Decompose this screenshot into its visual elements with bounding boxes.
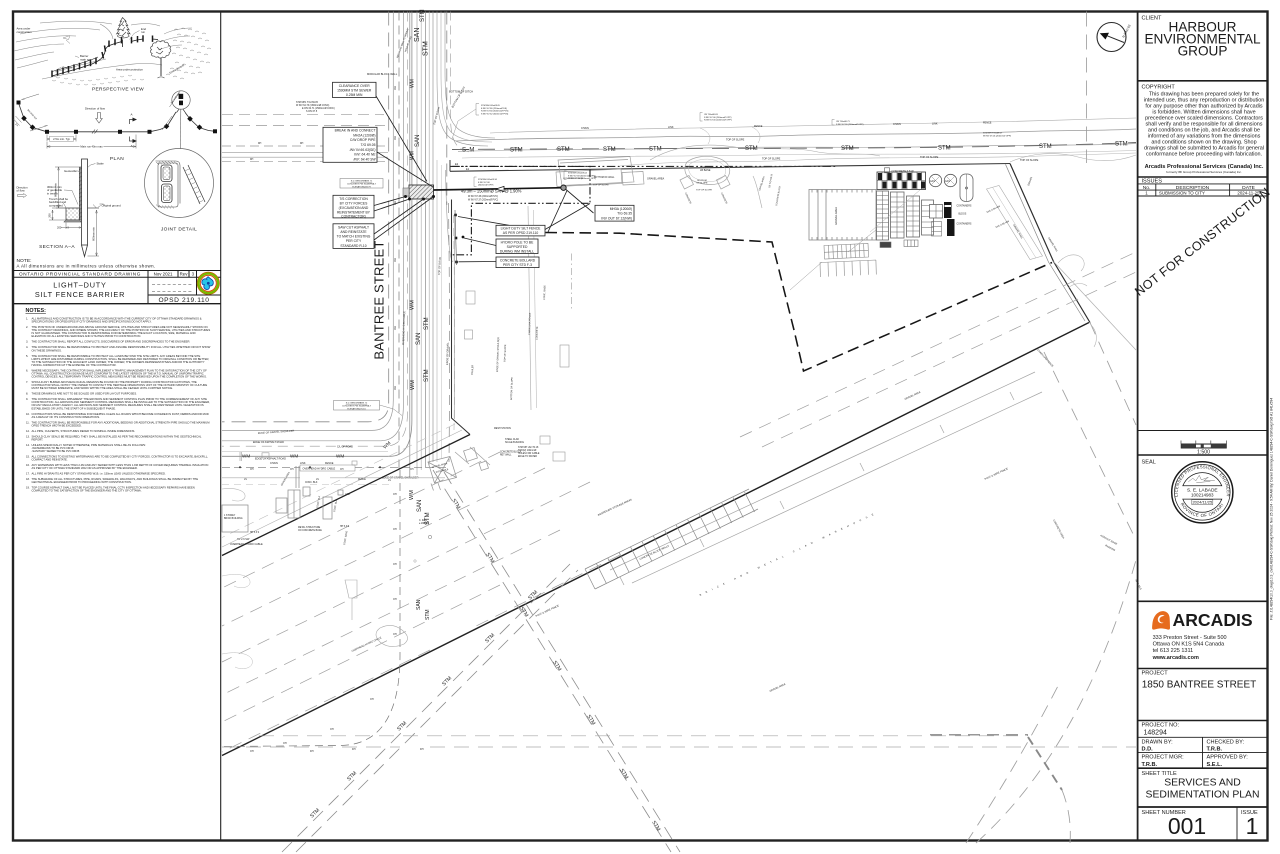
svg-text:SEDIMENTATION PLAN: SEDIMENTATION PLAN — [1146, 790, 1260, 801]
svg-text:GEOTECHNICAL ENGINEER PRIOR TO: GEOTECHNICAL ENGINEER PRIOR TO PROCEEDIN… — [32, 480, 132, 484]
svg-text:STM: STM — [424, 369, 430, 382]
svg-text:5.: 5. — [26, 354, 29, 358]
svg-text:333 Preston Street - Suite 500: 333 Preston Street - Suite 500 — [1153, 635, 1227, 641]
svg-text:DH: DH — [250, 159, 254, 161]
svg-text:CHAIN LINK FENCE: CHAIN LINK FENCE — [528, 312, 532, 335]
svg-text:ESTABLISHED OR UNTIL THE START: ESTABLISHED OR UNTIL THE START OF A SUBS… — [32, 406, 117, 410]
svg-text:BANTREE STREET: BANTREE STREET — [372, 240, 387, 359]
svg-text:INV OUT 67.12(NW): INV OUT 67.12(NW) — [601, 217, 632, 221]
svg-text:E1: E1 — [466, 167, 470, 171]
svg-text:CB T/G=69.10: CB T/G=69.10 — [769, 173, 774, 188]
svg-text:OH: OH — [283, 742, 287, 745]
svg-text:CONC. BLK: CONC. BLK — [305, 482, 318, 484]
svg-text:WM: WM — [242, 454, 250, 459]
svg-text:11.: 11. — [26, 420, 30, 424]
svg-text:2.: 2. — [26, 325, 29, 329]
svg-text:STM MH UG=69.05: STM MH UG=69.05 — [481, 105, 501, 107]
svg-text:tel 613 225 1311: tel 613 225 1311 — [1153, 648, 1194, 654]
svg-text:4.: 4. — [26, 345, 29, 349]
svg-text:1850 BANTREE STREET: 1850 BANTREE STREET — [1142, 680, 1256, 691]
svg-text:AGGREGATE STORAGE AREAS: AGGREGATE STORAGE AREAS — [597, 498, 633, 517]
svg-text:CONCRETE PIN IN ASPHALT: CONCRETE PIN IN ASPHALT — [342, 404, 372, 407]
svg-text:STOCKPILE: STOCKPILE — [436, 469, 449, 474]
svg-text:OH: OH — [410, 469, 414, 471]
svg-text:ON CONCRETE BASE: ON CONCRETE BASE — [298, 529, 322, 532]
svg-text:EDGE TO WATER: EDGE TO WATER — [518, 455, 537, 458]
svg-text:GRAVEL: GRAVEL — [1027, 176, 1033, 187]
svg-text:BREAK IN AND CONNECT: BREAK IN AND CONNECT — [335, 129, 376, 133]
svg-text:CONCRETE BLOCK WALLS: CONCRETE BLOCK WALLS — [639, 544, 670, 560]
svg-text:1500MM STM SEWER: 1500MM STM SEWER — [337, 88, 372, 92]
svg-text:STM: STM — [484, 632, 496, 644]
svg-text:REPORT.: REPORT. — [32, 437, 44, 441]
svg-text:OPSD 219.110: OPSD 219.110 — [158, 297, 209, 304]
svg-text:CHAIN LINK FENCE: CHAIN LINK FENCE — [1036, 349, 1054, 368]
svg-text:WM: WM — [410, 79, 416, 88]
svg-text:GRAVEL AREA: GRAVEL AREA — [432, 462, 449, 469]
svg-text:ELEVATION=70.16: ELEVATION=70.16 — [347, 407, 366, 410]
svg-text:PLAN: PLAN — [110, 156, 124, 162]
svg-text:OH: OH — [393, 86, 397, 90]
svg-text:1.: 1. — [26, 317, 29, 321]
svg-text:OPSD TRENCH WIDTH BE EXCEEDED.: OPSD TRENCH WIDTH BE EXCEEDED. — [32, 423, 82, 427]
svg-text:BRICK AND METAL CLAD WAREH: BRICK AND METAL CLAD WAREHOUSE — [699, 511, 878, 597]
svg-text:19.: 19. — [26, 486, 30, 490]
svg-text:14.: 14. — [26, 443, 30, 447]
svg-text:TOP OF SLOPE: TOP OF SLOPE — [504, 344, 508, 362]
svg-text:OH: OH — [393, 386, 397, 390]
svg-text:PROJECT MGR:: PROJECT MGR: — [1142, 755, 1185, 761]
svg-text:SAN: SAN — [416, 599, 422, 610]
svg-text:STM: STM — [1115, 142, 1128, 148]
svg-text:POST & WIRE FENCE: POST & WIRE FENCE — [984, 467, 1009, 481]
svg-text:of flow: of flow — [17, 189, 26, 193]
svg-text:OH: OH — [393, 563, 397, 566]
svg-text:MH3A (1200Ø): MH3A (1200Ø) — [610, 207, 632, 211]
svg-text:ON THESE DRAWINGS.: ON THESE DRAWINGS. — [32, 348, 62, 352]
svg-text:STM: STM — [424, 317, 430, 330]
svg-text:ARCADIS: ARCADIS — [1173, 610, 1253, 630]
svg-text:C/W DROP PIPE: C/W DROP PIPE — [350, 138, 376, 142]
svg-text:TOP OF SLOPE: TOP OF SLOPE — [726, 139, 745, 142]
svg-text:BOTTOM OF SLOPE: BOTTOM OF SLOPE — [510, 377, 514, 400]
svg-text:INV IN 66.63(SE): INV IN 66.63(SE) — [350, 148, 376, 152]
svg-text:STM: STM — [649, 147, 662, 153]
svg-text:CONCRETE: CONCRETE — [684, 193, 691, 205]
svg-text:LINK: LINK — [668, 126, 674, 129]
svg-text:SPECIFICATIONS OR OPSD/OPSS IF: SPECIFICATIONS OR OPSD/OPSS IF CITY DRAW… — [32, 320, 152, 324]
svg-text:MESH STATION: MESH STATION — [494, 427, 511, 430]
svg-text:E INV 64.71 (1500mmØ CONC): E INV 64.71 (1500mmØ CONC) — [302, 108, 335, 110]
svg-text:TOP OF DITCH: TOP OF DITCH — [437, 257, 442, 276]
svg-text:CHAIN: CHAIN — [270, 462, 278, 465]
svg-text:File: J:\148294\10.0_dwg\10.3_: File: J:\148294\10.0_dwg\10.3_civil\1482… — [1270, 398, 1274, 620]
svg-text:Embankment: Embankment — [169, 63, 185, 75]
svg-text:-SANITARY SEWER TO BE PVC DR35: -SANITARY SEWER TO BE PVC DR35 — [32, 449, 80, 453]
svg-text:TRAILER: TRAILER — [471, 365, 474, 375]
svg-text:8.: 8. — [26, 392, 29, 396]
svg-text:LS: LS — [388, 480, 391, 482]
svg-text:13.: 13. — [26, 434, 30, 438]
svg-text:EDGE OF GRAVEL SHOULDER: EDGE OF GRAVEL SHOULDER — [496, 337, 500, 372]
svg-text:N INV 67.00 (200mmØ OPP): N INV 67.00 (200mmØ OPP) — [704, 120, 732, 122]
svg-text:formerly IBI Group Professiona: formerly IBI Group Professional Services… — [1166, 170, 1242, 174]
svg-text:DH: DH — [352, 748, 356, 751]
svg-text:EDGE OF ASPHALT ROAD: EDGE OF ASPHALT ROAD — [255, 458, 286, 461]
svg-text:OH: OH — [250, 469, 254, 471]
svg-text:WM: WM — [409, 490, 415, 500]
svg-text:JOINT DETAIL: JOINT DETAIL — [161, 227, 197, 233]
svg-text:CLIENT: CLIENT — [1142, 16, 1162, 22]
svg-text:1: 1 — [1145, 191, 1148, 196]
svg-text:STM: STM — [510, 148, 523, 154]
svg-text:CONC. BASE: CONC. BASE — [543, 285, 547, 300]
svg-text:WM: WM — [410, 380, 416, 390]
svg-text:Stake: Stake — [97, 162, 105, 166]
svg-text:End run: End run — [63, 66, 73, 70]
svg-text:W INV 64.73 (1500mmØ CONC): W INV 64.73 (1500mmØ CONC) — [296, 105, 330, 107]
svg-text:(300mmØ OPP): (300mmØ OPP) — [478, 185, 494, 187]
svg-text:PERSPECTIVE VIEW: PERSPECTIVE VIEW — [92, 87, 144, 93]
svg-text:CONCRETE: CONCRETE — [720, 193, 727, 205]
svg-text:STM: STM — [441, 675, 453, 687]
svg-text:OH: OH — [393, 528, 397, 531]
svg-text:600mm min: 600mm min — [92, 227, 96, 241]
svg-text:S–M: S–M — [462, 148, 474, 154]
svg-text:www.arcadis.com: www.arcadis.com — [1152, 655, 1199, 661]
svg-text:ALL FIRE HYDRANTS AS PER CITY: ALL FIRE HYDRANTS AS PER CITY STANDARD W… — [32, 472, 166, 476]
svg-text:LS: LS — [244, 479, 247, 481]
svg-text:LINK: LINK — [300, 462, 306, 465]
svg-text:CONC. BLK: CONC. BLK — [317, 495, 321, 508]
svg-text:STM MH T/G=69.07: STM MH T/G=69.07 — [983, 133, 1003, 135]
svg-text:E INV 67.08: E INV 67.08 — [478, 182, 490, 184]
svg-text:STM: STM — [618, 768, 629, 780]
svg-text:CONCRETE FOUND.: CONCRETE FOUND. — [563, 178, 584, 180]
svg-text:10.: 10. — [26, 412, 30, 416]
svg-text:LINK: LINK — [932, 123, 938, 126]
svg-text:METAL STRUCTURE: METAL STRUCTURE — [298, 526, 321, 529]
svg-text:STM: STM — [518, 606, 529, 618]
svg-text:T/G 69.35: T/G 69.35 — [617, 212, 632, 216]
svg-text:18.: 18. — [26, 477, 30, 481]
svg-text:CONCRETE AREA: CONCRETE AREA — [1052, 519, 1065, 540]
svg-text:SAN: SAN — [417, 500, 423, 512]
svg-text:MH2A (1200Ø): MH2A (1200Ø) — [353, 133, 375, 137]
svg-text:3.: 3. — [26, 340, 29, 344]
svg-text:RET WALL: RET WALL — [500, 454, 512, 457]
svg-text:GAS: GAS — [930, 180, 935, 183]
svg-text:S.D. BENCHMARK #1: S.D. BENCHMARK #1 — [351, 180, 373, 183]
svg-text:001: 001 — [1168, 813, 1206, 839]
svg-text:CHAIN: CHAIN — [581, 127, 589, 130]
svg-text:TO MATCH EXISTING: TO MATCH EXISTING — [337, 234, 371, 238]
svg-text:Nov 2021: Nov 2021 — [154, 272, 173, 277]
svg-text:12.: 12. — [26, 429, 30, 433]
svg-text:200: 200 — [48, 213, 52, 218]
svg-text:SAN: SAN — [414, 28, 421, 42]
svg-text:AS A RESULT OF ITS CONSTRUCTIO: AS A RESULT OF ITS CONSTRUCTION OPERATIO… — [32, 415, 101, 419]
svg-text:SHOULD CLAY SEALS BE REQUIRED,: SHOULD CLAY SEALS BE REQUIRED, THEY SHAL… — [32, 434, 202, 438]
svg-text:FENCE: FENCE — [325, 462, 334, 465]
svg-text:e.188866: e.188866 — [419, 523, 429, 525]
svg-text:FENCE: FENCE — [754, 125, 763, 128]
svg-text:TOP OF SLOPE: TOP OF SLOPE — [593, 185, 609, 187]
svg-text:OF SLOPE: OF SLOPE — [697, 183, 708, 185]
svg-text:OH: OH — [393, 258, 397, 262]
svg-text:STM: STM — [585, 714, 596, 726]
svg-text:A: A — [131, 144, 133, 148]
svg-text:GRAVEL AREA: GRAVEL AREA — [647, 178, 665, 181]
svg-text:S INV 67.5: S INV 67.5 — [306, 111, 318, 113]
svg-text:CONC. BASE: CONC. BASE — [343, 530, 348, 545]
svg-text:W INV 67.37 (200mmØ PVC): W INV 67.37 (200mmØ PVC) — [468, 200, 498, 202]
svg-text:TOP OF SLOPE: TOP OF SLOPE — [762, 158, 781, 161]
svg-text:15.: 15. — [26, 455, 30, 459]
svg-text:17.: 17. — [26, 472, 30, 476]
svg-text:7.: 7. — [26, 380, 29, 384]
svg-text:SUBMISSION TO CITY: SUBMISSION TO CITY — [1159, 191, 1205, 196]
svg-text:3m end run: 3m end run — [26, 108, 38, 121]
svg-text:OH: OH — [330, 728, 334, 731]
svg-text:PARKING: PARKING — [1105, 544, 1116, 552]
svg-text:CB T/G=68.71: CB T/G=68.71 — [836, 121, 851, 123]
svg-text:CONCRETE BLOCK: CONCRETE BLOCK — [776, 185, 782, 206]
svg-text:TOP OF SLOPE: TOP OF SLOPE — [696, 189, 713, 191]
svg-text:A All dimensions are in mill: A All dimensions are in millimetres unle… — [17, 263, 156, 268]
svg-text:main run: main run — [80, 57, 91, 61]
svg-text:STEEL CLAD: STEEL CLAD — [505, 438, 519, 441]
svg-text:148294: 148294 — [1144, 730, 1167, 737]
svg-text:BOTTOM OF WALL: BOTTOM OF WALL — [594, 176, 615, 179]
svg-text:OH: OH — [340, 469, 344, 471]
svg-text:C/L OF ROAD: C/L OF ROAD — [337, 446, 353, 449]
svg-text:DH: DH — [300, 143, 304, 145]
svg-text:9.: 9. — [26, 397, 29, 401]
svg-text:OH: OH — [393, 326, 397, 330]
svg-text:Direction of flow: Direction of flow — [85, 107, 106, 111]
svg-text:GRAVEL AREA: GRAVEL AREA — [280, 471, 291, 487]
svg-text:LINK: LINK — [345, 494, 351, 496]
svg-text:TOP OF SLOPE: TOP OF SLOPE — [920, 156, 939, 159]
svg-text:PROJECT: PROJECT — [1142, 671, 1169, 677]
svg-text:OH: OH — [250, 750, 254, 753]
svg-text:PROJECT NO:: PROJECT NO: — [1142, 723, 1180, 729]
svg-text:ONTARIO PROVINCIAL STANDARD: ONTARIO PROVINCIAL STANDARD DRAWING — [19, 272, 141, 277]
svg-text:BOTTOM OF DITCH: BOTTOM OF DITCH — [450, 86, 466, 109]
svg-text:SUPPORTED: SUPPORTED — [507, 245, 528, 249]
svg-text:PER CITY: PER CITY — [346, 239, 362, 243]
svg-text:WM: WM — [336, 454, 344, 459]
svg-text:STM: STM — [423, 41, 430, 56]
svg-text:GRAVEL WALL: GRAVEL WALL — [1012, 224, 1024, 240]
svg-text:2024/11/25: 2024/11/25 — [1192, 500, 1212, 505]
svg-text:S INV 67.30 (200mmØ OPP): S INV 67.30 (200mmØ OPP) — [836, 124, 864, 126]
svg-text:D.D.: D.D. — [1142, 747, 1154, 753]
svg-text:WM: WM — [382, 440, 391, 449]
svg-text:T/S CORRECTION: T/S CORRECTION — [339, 197, 368, 201]
svg-text:STM: STM — [346, 770, 358, 782]
svg-text:49.3m – 150mmØ SAN @ 1.90%: 49.3m – 150mmØ SAN @ 1.90% — [461, 188, 522, 193]
svg-text:STM MH1 T/G=69.05: STM MH1 T/G=69.05 — [296, 102, 319, 104]
svg-text:OVERHEAD HYDRO CABLE: OVERHEAD HYDRO CABLE — [401, 311, 406, 345]
svg-text:CHECKED BY:: CHECKED BY: — [1207, 739, 1245, 745]
svg-text:Ottawa ON K1S 5N4 Canada: Ottawa ON K1S 5N4 Canada — [1153, 642, 1225, 648]
svg-text:SEAL: SEAL — [1142, 459, 1156, 465]
svg-text:ISSUES: ISSUES — [1142, 179, 1163, 185]
svg-text:STM: STM — [557, 147, 570, 153]
svg-text:N INV 67.60 (300mmØ PVS): N INV 67.60 (300mmØ PVS) — [481, 111, 509, 113]
svg-text:CONCRETE BOLLARD: CONCRETE BOLLARD — [500, 259, 536, 263]
svg-text:STM: STM — [309, 807, 321, 819]
svg-text:COMPACT AND REINSTATE.: COMPACT AND REINSTATE. — [32, 458, 68, 462]
svg-text:EDGE OF GRAVEL: EDGE OF GRAVEL — [445, 342, 450, 365]
svg-text:GROUP: GROUP — [1178, 44, 1228, 59]
svg-text:LIGHT DUTY SILT FENCE: LIGHT DUTY SILT FENCE — [501, 227, 541, 231]
svg-text:HP 5.3 S: HP 5.3 S — [340, 526, 350, 528]
svg-text:1: 1 — [1246, 813, 1259, 839]
svg-text:compacted: compacted — [49, 203, 63, 207]
svg-text:S.E.L.: S.E.L. — [1207, 762, 1223, 768]
svg-text:E INV 67.80 (250mmØ DS): E INV 67.80 (250mmØ DS) — [481, 108, 507, 110]
svg-text:S INV 67.62 (300mmØ PVS): S INV 67.62 (300mmØ PVS) — [481, 113, 509, 115]
svg-text:SAN: SAN — [415, 135, 421, 147]
svg-text:2.5m min. Typ: 2.5m min. Typ — [53, 137, 70, 141]
svg-text:6.: 6. — [26, 368, 29, 372]
svg-text:1m: 1m — [14, 123, 18, 127]
svg-text:ELEVATION OF ALL EXISTING SERV: ELEVATION OF ALL EXISTING SERVICES AND U… — [32, 334, 142, 338]
svg-text:DH: DH — [420, 748, 424, 751]
svg-text:THESE DRAWINGS ARE NOT TO BE S: THESE DRAWINGS ARE NOT TO BE SCALED OR U… — [32, 392, 138, 396]
svg-text:construction: construction — [17, 30, 33, 34]
svg-text:MODULAR BLOCK WALL: MODULAR BLOCK WALL — [367, 72, 398, 76]
svg-text:(EXCAVATION AND: (EXCAVATION AND — [339, 206, 369, 210]
svg-text:DURING WM INSTALL: DURING WM INSTALL — [500, 249, 534, 253]
svg-text:AS PER CITY OF OTTAWA STANDARD: AS PER CITY OF OTTAWA STANDARD W22 OR AS… — [32, 466, 138, 470]
svg-text:DH: DH — [258, 143, 262, 145]
svg-text:OH: OH — [393, 598, 397, 601]
svg-text:THE CONTRACTOR SHALL REPORT AL: THE CONTRACTOR SHALL REPORT ALL CONFLICT… — [32, 340, 191, 344]
svg-text:100214983: 100214983 — [1191, 493, 1214, 498]
svg-text:S INV 67.06 (200mmØ OPP): S INV 67.06 (200mmØ OPP) — [704, 117, 732, 119]
svg-text:STM MH UG=69.04: STM MH UG=69.04 — [568, 173, 588, 175]
svg-text:OH: OH — [393, 633, 397, 636]
svg-text:CHAIN: CHAIN — [893, 123, 901, 126]
svg-text:conformance before proceeding: conformance before proceeding with fabri… — [1146, 152, 1263, 158]
svg-text:COPYRIGHT: COPYRIGHT — [1142, 84, 1176, 90]
svg-text:W INV 67.06 (200mmØ OPP): W INV 67.06 (200mmØ OPP) — [983, 135, 1011, 137]
svg-text:OH: OH — [370, 698, 374, 701]
svg-text:CLEARANCE OVER: CLEARANCE OVER — [339, 84, 370, 88]
svg-text:LIGHT–DUTY: LIGHT–DUTY — [53, 281, 106, 290]
svg-text:WM: WM — [290, 454, 298, 459]
svg-text:EDGE OF ASPHALT ROAD: EDGE OF ASPHALT ROAD — [253, 441, 284, 444]
svg-text:SERVICES AND: SERVICES AND — [1164, 778, 1241, 789]
svg-text:SCALE BUILDING: SCALE BUILDING — [505, 441, 524, 444]
svg-text:Main run 40m max: Main run 40m max — [80, 145, 103, 149]
svg-text:E INV 67.58 (300mmØ OPP): E INV 67.58 (300mmØ OPP) — [568, 175, 596, 177]
svg-text:STM MH UG=69.34: STM MH UG=69.34 — [478, 179, 498, 181]
svg-text:LB BASE: LB BASE — [700, 169, 711, 172]
svg-text:STM: STM — [420, 9, 426, 22]
svg-text:T.R.B.: T.R.B. — [1207, 747, 1223, 753]
svg-text:0.25M MIN: 0.25M MIN — [346, 93, 363, 97]
svg-text:W INV 67.45 (200mmØ PVC): W INV 67.45 (200mmØ PVC) — [468, 196, 498, 198]
svg-text:STM: STM — [603, 147, 616, 153]
svg-text:STM: STM — [396, 720, 408, 732]
svg-text:GAS: GAS — [945, 180, 950, 183]
svg-text:AND REINSTATE: AND REINSTATE — [340, 230, 367, 234]
svg-text:BLDGS: BLDGS — [959, 214, 967, 216]
svg-text:FENCE: FENCE — [358, 479, 366, 481]
svg-text:S.D. BENCHMARK #2: S.D. BENCHMARK #2 — [346, 402, 368, 405]
svg-text:CONTRACTOR): CONTRACTOR) — [341, 214, 366, 218]
svg-text:CONTAINERS: CONTAINERS — [957, 223, 972, 226]
svg-text:T/G 69.05: T/G 69.05 — [361, 143, 376, 147]
svg-text:HOLES FOR CABLE: HOLES FOR CABLE — [518, 452, 540, 455]
svg-text:NOTES:: NOTES: — [26, 308, 47, 314]
svg-text:WM: WM — [410, 300, 416, 310]
svg-text:OH: OH — [290, 469, 294, 471]
svg-text:MUST BE NOTIFIED IMMEDIATE, AN: MUST BE NOTIFIED IMMEDIATE, AND WORK WIT… — [32, 386, 174, 390]
svg-text:STM: STM — [527, 589, 539, 601]
svg-text:STM: STM — [1039, 144, 1052, 150]
svg-text:CONCRETE: CONCRETE — [536, 326, 539, 340]
svg-text:E2: E2 — [455, 162, 459, 166]
svg-text:GRAVEL AREA: GRAVEL AREA — [769, 683, 786, 693]
svg-text:CONCRETE 0.8 W: CONCRETE 0.8 W — [892, 169, 915, 173]
svg-text:STM: STM — [841, 146, 854, 152]
svg-text:GRAVEL AREA: GRAVEL AREA — [758, 176, 766, 192]
svg-text:HP 5.3 S: HP 5.3 S — [250, 532, 260, 534]
svg-text:Area under protection: Area under protection — [116, 68, 143, 72]
svg-text:in trench: in trench — [47, 191, 58, 195]
svg-text:BRICK BUILDING: BRICK BUILDING — [224, 518, 243, 520]
svg-text:STM MH UG=70.18: STM MH UG=70.18 — [518, 447, 539, 449]
svg-text:STM: STM — [450, 498, 461, 510]
svg-text:STM: STM — [425, 609, 431, 620]
svg-text:run: run — [141, 30, 145, 34]
svg-text:APPROVED BY:: APPROVED BY: — [1207, 755, 1249, 761]
svg-text:200: 200 — [57, 226, 62, 230]
svg-text:Rev: Rev — [180, 272, 189, 277]
svg-text:DRAWN BY:: DRAWN BY: — [1142, 739, 1174, 745]
svg-text:16.: 16. — [26, 463, 30, 467]
svg-text:CONTAINERS: CONTAINERS — [957, 205, 972, 208]
svg-text:STM: STM — [745, 146, 758, 152]
svg-text:INV: 64.40 SW: INV: 64.40 SW — [353, 157, 376, 161]
svg-text:CONTROL DEVICES. ALL TEMPORARY: CONTROL DEVICES. ALL TEMPORARY TRAFFIC C… — [32, 375, 207, 379]
svg-text:TOP OF SLOPE: TOP OF SLOPE — [1020, 159, 1039, 162]
svg-text:Geotextile: Geotextile — [64, 169, 77, 173]
svg-text:ALL PIPE, CULVERTS, STRUCTURES: ALL PIPE, CULVERTS, STRUCTURES REFER TO … — [32, 429, 136, 433]
svg-text:STANDARD R-10: STANDARD R-10 — [340, 244, 366, 248]
svg-text:ELEVATION=69.79: ELEVATION=69.79 — [352, 185, 371, 188]
svg-text:GRAVEL AREA: GRAVEL AREA — [904, 391, 921, 401]
svg-text:Original ground: Original ground — [102, 203, 122, 207]
svg-text:HYDRO POLE TO BE: HYDRO POLE TO BE — [501, 240, 535, 244]
svg-text:CB T/G=68.63: CB T/G=68.63 — [704, 114, 719, 116]
svg-text:PER CITY STD F-3: PER CITY STD F-3 — [503, 263, 532, 267]
svg-text:SAN: SAN — [416, 333, 422, 345]
svg-text:T.R.B.: T.R.B. — [1142, 762, 1158, 768]
svg-text:COMPLETED TO THE SATISFACTION: COMPLETED TO THE SATISFACTION OF THE ENG… — [32, 489, 142, 493]
svg-text:OVERHEAD HYDRO CABLE: OVERHEAD HYDRO CABLE — [303, 467, 336, 470]
svg-text:INV: 64.40 NE: INV: 64.40 NE — [354, 153, 376, 157]
svg-text:OH: OH — [393, 493, 397, 496]
svg-text:WM: WM — [410, 151, 416, 160]
svg-text:HAVING JURISDICTION AT THE EXP: HAVING JURISDICTION AT THE EXPENSE OF TH… — [32, 363, 117, 367]
